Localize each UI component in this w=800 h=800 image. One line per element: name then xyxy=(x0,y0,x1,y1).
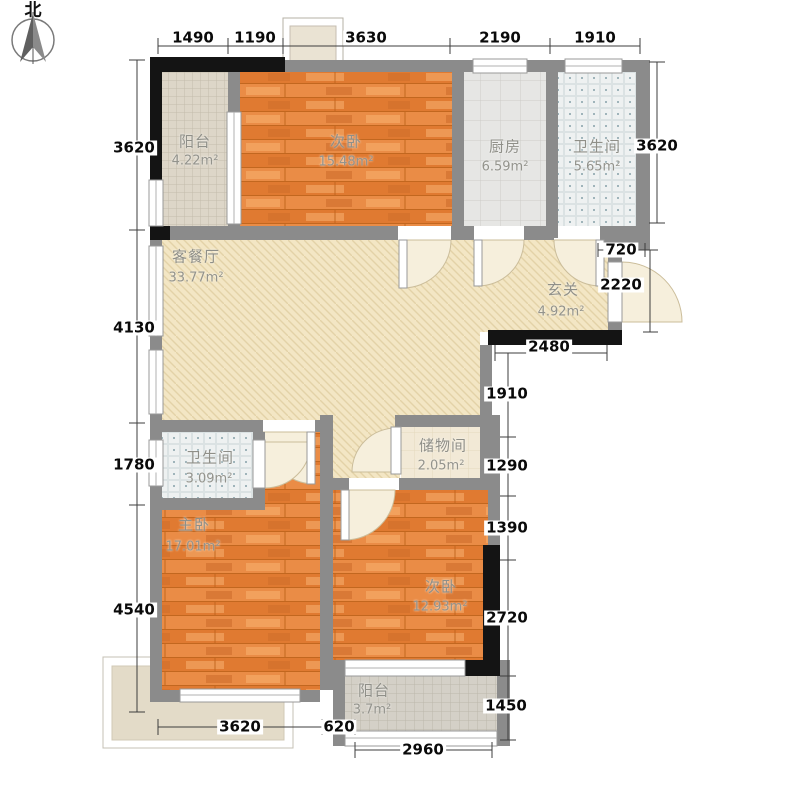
room-area-living-dining: 33.77m² xyxy=(168,272,223,285)
door-leaf-bedroom-north xyxy=(399,240,407,288)
dim-right-1910: 1910 xyxy=(484,387,530,402)
floor-plan-graphic xyxy=(0,0,800,800)
room-area-storage: 2.05m² xyxy=(418,460,465,473)
door-leaf-bedroom-south xyxy=(341,490,349,540)
door-leaf-master xyxy=(307,432,315,484)
dim-right-1290: 1290 xyxy=(484,459,530,474)
dim-bottom-620: 620 xyxy=(321,720,356,735)
room-label-master-bedroom: 主卧 xyxy=(178,518,210,533)
room-label-balcony-north: 阳台 xyxy=(179,135,211,150)
room-area-bath-north: 5.65m² xyxy=(574,161,621,174)
room-area-balcony-south: 3.7m² xyxy=(353,704,392,717)
dim-left-1780: 1780 xyxy=(111,458,157,473)
dim-left-4540: 4540 xyxy=(111,603,157,618)
room-label-bedroom-south: 次卧 xyxy=(425,580,457,595)
dim-top-2190: 2190 xyxy=(477,31,523,46)
room-floor-living-lower xyxy=(162,330,480,420)
dim-left-3620: 3620 xyxy=(111,141,157,156)
dim-right-2720: 2720 xyxy=(484,611,530,626)
dim-left-4130: 4130 xyxy=(111,321,157,336)
room-label-foyer: 玄关 xyxy=(547,283,579,298)
room-area-kitchen: 6.59m² xyxy=(482,161,529,174)
dim-top-1190: 1190 xyxy=(232,31,278,46)
door-leaf-bath-mid xyxy=(253,440,265,488)
dim-top-1910: 1910 xyxy=(572,31,618,46)
room-area-master-bedroom: 17.01m² xyxy=(165,541,220,554)
dim-right-1390: 1390 xyxy=(484,521,530,536)
room-label-bedroom-north: 次卧 xyxy=(330,135,362,150)
room-label-storage: 储物间 xyxy=(419,439,467,454)
room-floor-balcony-north xyxy=(162,72,228,232)
dim-bottom-2960: 2960 xyxy=(400,743,446,758)
dim-right-2480: 2480 xyxy=(526,340,572,355)
room-label-living-dining: 客餐厅 xyxy=(172,250,220,265)
dim-right-1450: 1450 xyxy=(483,699,529,714)
bay-window xyxy=(283,18,343,62)
floor-plan-page: 北 阳台 4.22m² 次卧 15.48m² 厨房 6.59m² 卫生间 5.6… xyxy=(0,0,800,800)
dim-right-2220: 2220 xyxy=(598,278,644,293)
dim-bottom-3620: 3620 xyxy=(217,720,263,735)
room-label-bath-north: 卫生间 xyxy=(573,140,621,155)
dim-top-3630: 3630 xyxy=(343,31,389,46)
room-label-kitchen: 厨房 xyxy=(489,140,521,155)
room-area-bath-mid: 3.09m² xyxy=(186,473,233,486)
room-area-foyer: 4.92m² xyxy=(538,306,585,319)
dim-right-720: 720 xyxy=(603,243,638,258)
door-leaf-kitchen xyxy=(474,240,482,286)
room-label-bath-mid: 卫生间 xyxy=(186,451,234,466)
door-leaf-storage xyxy=(391,427,401,474)
room-area-bedroom-north: 15.48m² xyxy=(318,156,373,169)
room-label-balcony-south: 阳台 xyxy=(358,684,390,699)
room-area-bedroom-south: 12.93m² xyxy=(412,601,467,614)
dim-top-1490: 1490 xyxy=(170,31,216,46)
dim-right-3620: 3620 xyxy=(634,139,680,154)
compass-north-label: 北 xyxy=(25,3,42,20)
room-area-balcony-north: 4.22m² xyxy=(172,155,219,168)
